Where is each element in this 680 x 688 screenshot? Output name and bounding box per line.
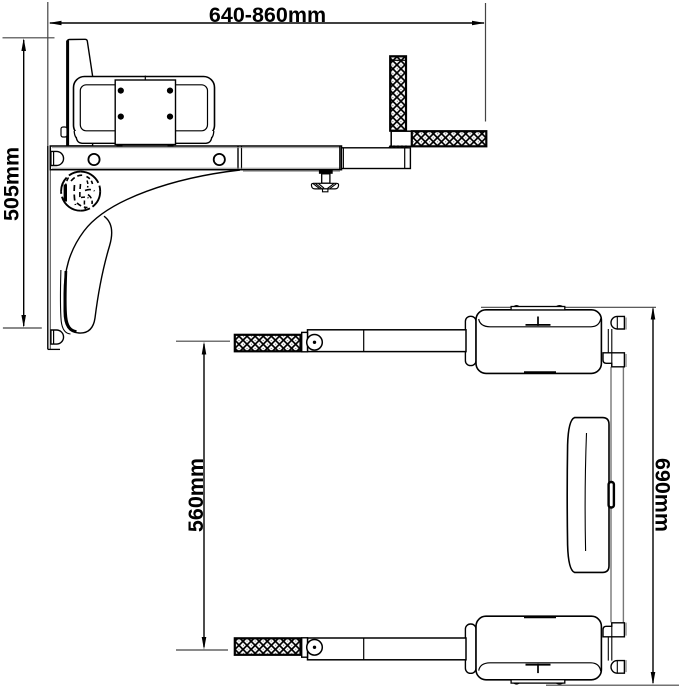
svg-text:560mm: 560mm xyxy=(184,458,208,532)
svg-text:690mm: 690mm xyxy=(651,458,675,532)
svg-text:505mm: 505mm xyxy=(0,147,24,221)
svg-text:640-860mm: 640-860mm xyxy=(209,3,326,27)
